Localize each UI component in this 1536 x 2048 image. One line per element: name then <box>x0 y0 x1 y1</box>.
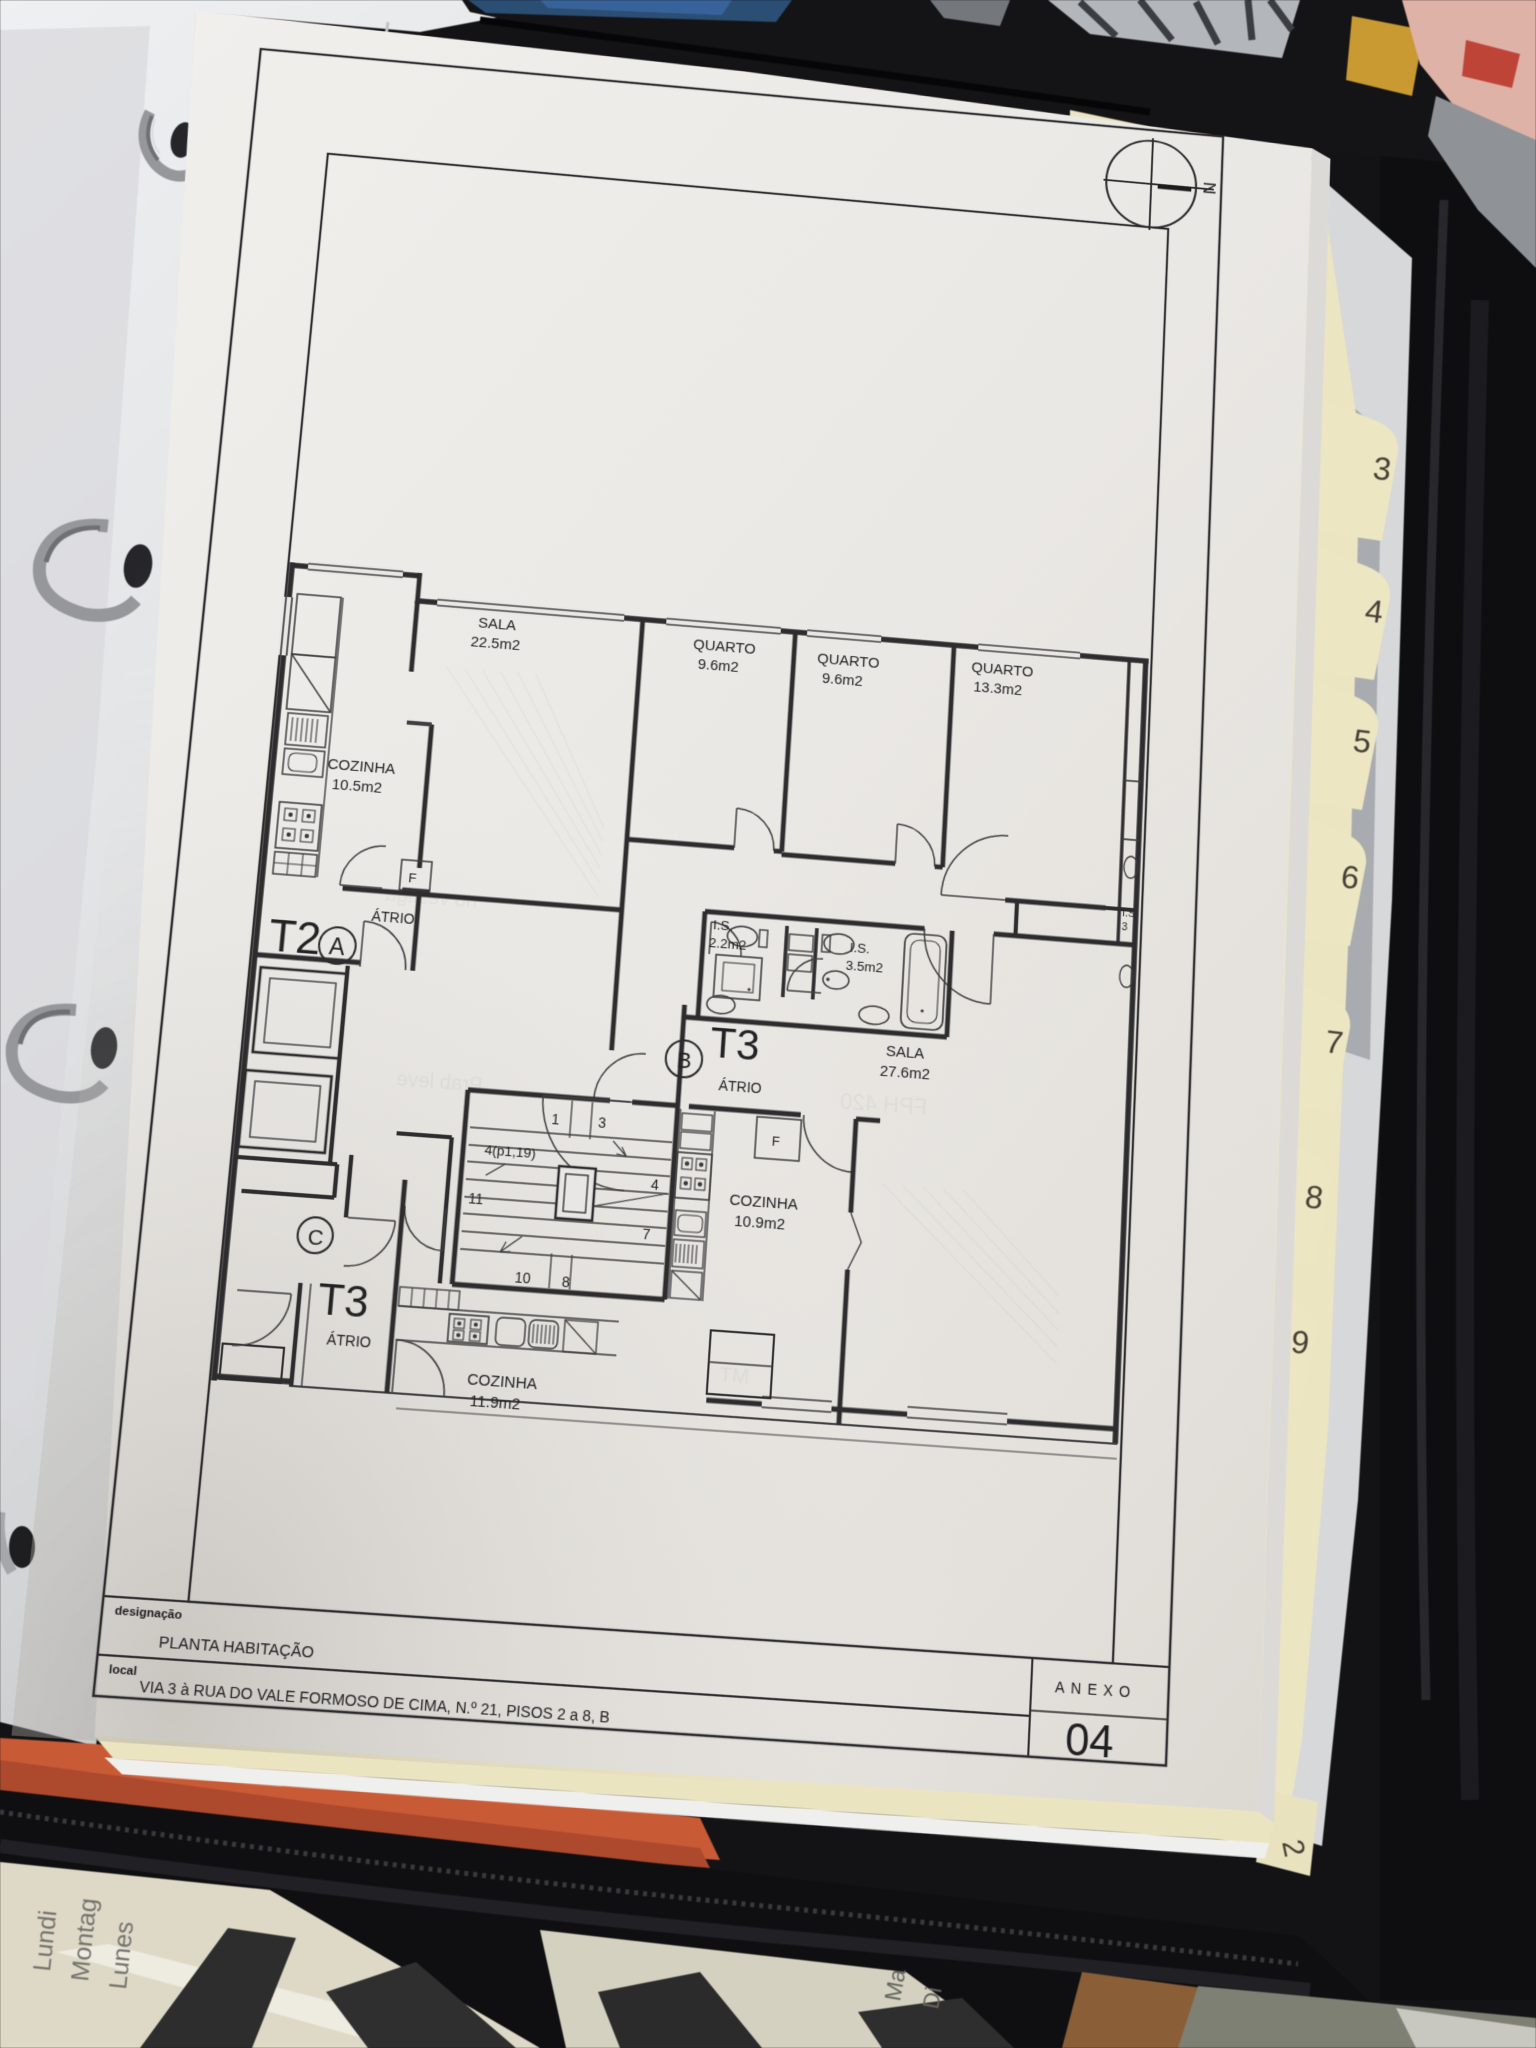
svg-text:MT: MT <box>719 1363 750 1389</box>
svg-text:10.9m2: 10.9m2 <box>734 1211 786 1232</box>
svg-text:T3: T3 <box>316 1274 371 1327</box>
svg-text:ÁTRIO: ÁTRIO <box>371 908 416 927</box>
svg-text:SALA: SALA <box>886 1042 926 1062</box>
svg-text:F: F <box>771 1133 780 1149</box>
svg-text:Di: Di <box>917 1985 946 2011</box>
svg-text:ÁTRIO: ÁTRIO <box>718 1077 762 1097</box>
svg-text:9.6m2: 9.6m2 <box>697 655 739 675</box>
svg-text:3: 3 <box>598 1114 607 1131</box>
svg-text:3.5m2: 3.5m2 <box>845 958 883 976</box>
svg-text:27.6m2: 27.6m2 <box>879 1062 930 1083</box>
svg-text:11.9m2: 11.9m2 <box>469 1391 521 1413</box>
svg-text:SALA: SALA <box>478 614 518 634</box>
svg-text:I.S.: I.S. <box>713 917 734 934</box>
svg-text:local: local <box>108 1663 137 1679</box>
svg-text:I.S: I.S <box>1122 908 1136 921</box>
svg-text:7: 7 <box>642 1226 651 1243</box>
svg-text:Ma: Ma <box>879 1967 910 2003</box>
svg-text:I.S.: I.S. <box>849 940 870 957</box>
svg-text:A: A <box>328 934 347 961</box>
svg-text:11: 11 <box>468 1190 484 1208</box>
svg-text:4: 4 <box>650 1176 659 1193</box>
svg-text:T3: T3 <box>709 1019 761 1071</box>
svg-text:N: N <box>1199 181 1219 195</box>
svg-text:8: 8 <box>561 1273 570 1290</box>
svg-text:04: 04 <box>1064 1713 1114 1768</box>
svg-text:2.2m2: 2.2m2 <box>708 935 746 953</box>
svg-text:3: 3 <box>1121 922 1128 934</box>
svg-text:9.6m2: 9.6m2 <box>822 669 864 689</box>
svg-text:10: 10 <box>514 1269 531 1287</box>
svg-text:ÁTRIO: ÁTRIO <box>326 1331 372 1351</box>
svg-text:B: B <box>676 1048 692 1074</box>
svg-text:1: 1 <box>551 1111 560 1128</box>
svg-text:C: C <box>307 1225 325 1251</box>
svg-text:T2: T2 <box>267 910 324 964</box>
